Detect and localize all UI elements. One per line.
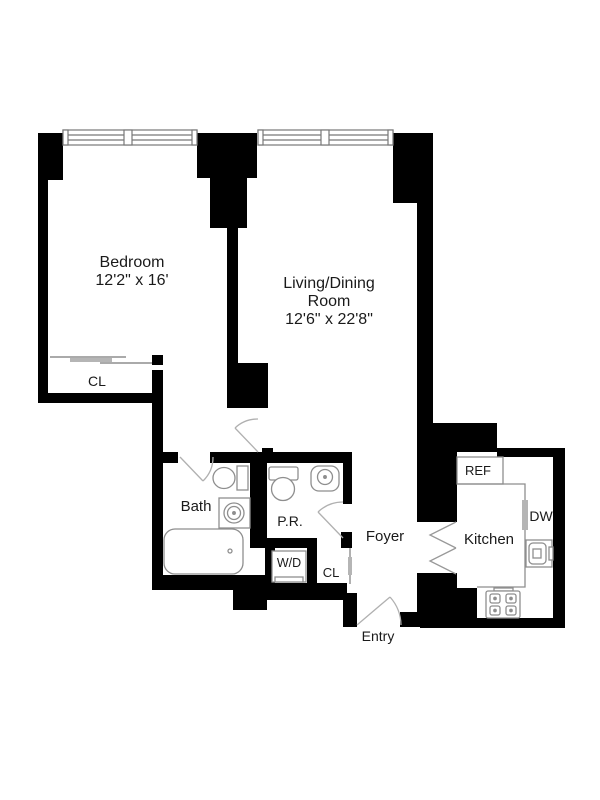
wall-bedroom-closet-bottom	[38, 393, 163, 403]
foyer-closet-label: CL	[323, 565, 340, 580]
stove-burner-dot	[494, 597, 496, 599]
bath-sink-drain	[233, 512, 236, 515]
powder-room-door-arc	[318, 502, 343, 512]
kitchen-sink-drain	[533, 549, 541, 558]
bedroom-closet-sliding-door	[50, 357, 152, 363]
entry-door-leaf	[357, 597, 390, 625]
powder-room-door	[318, 502, 343, 538]
foyer-closet-sliding-door	[348, 548, 352, 584]
pr-corner-sink-drain	[324, 476, 327, 479]
wall-closet-door-stub	[341, 532, 352, 548]
stove-burner-dot	[510, 597, 512, 599]
powder-room-door-leaf	[318, 512, 343, 538]
kitchen-label: Kitchen	[464, 531, 514, 548]
window-mullion	[321, 130, 329, 145]
window-end-cap	[388, 130, 393, 145]
window-end-cap	[192, 130, 197, 145]
window-bedroom	[63, 130, 197, 145]
wall-foyer-kitchen-divider-upper	[417, 452, 457, 522]
bath-door-leaf	[180, 457, 203, 481]
entry-door	[357, 597, 401, 625]
wall-wd-bottom	[265, 583, 347, 600]
living-room-label-line2: Room	[308, 293, 351, 310]
floor-plan: Bedroom 12'2" x 16' Living/Dining Room 1…	[0, 0, 600, 800]
wall-bath-door-left-stub	[162, 452, 178, 463]
dishwasher-label: DW	[529, 508, 553, 524]
wall-closet-divider	[307, 538, 317, 588]
window-end-cap	[63, 130, 68, 145]
stove-burner-dot	[494, 609, 496, 611]
stove-burner-dot	[510, 609, 512, 611]
entry-label: Entry	[362, 628, 395, 644]
refrigerator-label: REF	[465, 463, 491, 478]
wall-right	[417, 203, 433, 425]
wall-bedroom-living-divider	[227, 228, 238, 363]
wall-pr-right	[343, 452, 352, 504]
wall-pr-top	[253, 452, 352, 463]
wall-left	[38, 133, 48, 403]
toilet-tank	[237, 466, 248, 490]
wall-bath-bottom-right-block	[233, 575, 267, 610]
pr-bowl	[272, 478, 295, 501]
window-living-room	[258, 130, 393, 145]
bathtub-drain	[228, 549, 232, 553]
bedroom-closet-label: CL	[88, 373, 106, 389]
wall-pr-left	[250, 452, 267, 548]
wall-hall-block	[227, 363, 268, 408]
wall-bath-top-right	[210, 452, 253, 463]
bath-label: Bath	[181, 498, 212, 515]
window-mullion	[124, 130, 132, 145]
wall-divider-mid-block	[210, 178, 247, 228]
wall-divider-top-block	[197, 133, 257, 178]
hall-door	[235, 419, 258, 452]
bedroom-label: Bedroom	[100, 254, 165, 271]
kitchen-swing-door-lower	[430, 548, 456, 574]
floor-plan-page: Bedroom 12'2" x 16' Living/Dining Room 1…	[0, 0, 600, 800]
foyer-label: Foyer	[366, 528, 404, 545]
dishwasher-front	[522, 500, 528, 530]
living-room-dims: 12'6" x 22'8"	[285, 311, 373, 328]
wall-bath-bottom	[152, 575, 247, 590]
wall-kitchen-step-block	[457, 588, 477, 628]
living-room-label-line1: Living/Dining	[283, 275, 375, 292]
kitchen-swing-door-upper	[430, 522, 456, 548]
hall-door-arc	[235, 419, 258, 428]
wall-kitchen-right	[553, 448, 565, 628]
window-end-cap	[258, 130, 263, 145]
entry-door-arc	[390, 597, 401, 625]
wall-bath-left	[152, 370, 163, 590]
bedroom-dims: 12'2" x 16'	[95, 272, 168, 289]
bath-door	[180, 457, 213, 481]
washer-dryer-front	[275, 577, 303, 582]
wall-foyer-kitchen-divider-lower	[417, 573, 457, 627]
wall-bedroom-closet-right-stub	[152, 355, 163, 365]
hall-door-leaf	[235, 428, 258, 452]
toilet-bowl	[213, 468, 235, 489]
wall-foyer-bottom-left-block	[343, 593, 357, 627]
wall-right-top-block	[393, 133, 433, 203]
kitchen-sink-handle	[549, 547, 553, 560]
wall-kitchen-top-left-block	[417, 423, 497, 452]
kitchen-swing-doors	[430, 522, 456, 574]
washer-dryer-label: W/D	[277, 556, 301, 570]
powder-room-label: P.R.	[277, 513, 302, 529]
